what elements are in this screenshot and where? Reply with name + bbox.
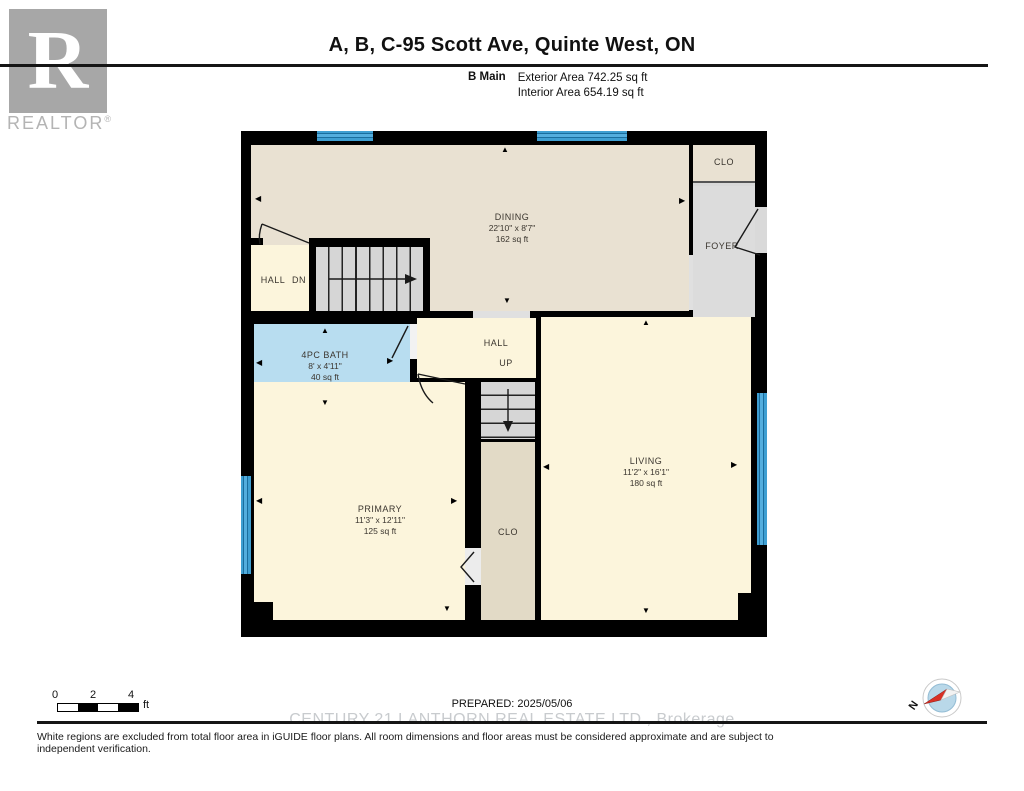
realtor-logo: R xyxy=(9,9,107,113)
header-divider xyxy=(0,64,988,67)
floor-plan-page: R REALTOR® A, B, C-95 Scott Ave, Quinte … xyxy=(0,0,1024,791)
prepared-date: PREPARED: 2025/05/06 xyxy=(0,698,1024,710)
footer-divider xyxy=(37,721,987,724)
realtor-logo-r-icon: R xyxy=(28,19,89,103)
closet-bifold-door xyxy=(461,552,474,582)
disclaimer-text: White regions are excluded from total fl… xyxy=(37,731,827,755)
bath-door-leaf xyxy=(392,326,408,358)
hall-door-arc xyxy=(259,224,262,244)
hall-lower-door-leaf xyxy=(418,374,465,384)
exterior-area: Exterior Area 742.25 sq ft xyxy=(518,71,648,86)
stairs-down-arrowhead xyxy=(405,274,417,284)
hall-door-leaf xyxy=(262,224,309,243)
stairs-up-arrowhead xyxy=(503,421,513,432)
floor-plan-canvas: DINING 22'10" x 8'7" 162 sq ft 4PC BATH … xyxy=(241,131,767,637)
plan-annotations xyxy=(241,131,767,637)
page-title: A, B, C-95 Scott Ave, Quinte West, ON xyxy=(0,34,1024,57)
compass-north-label: N xyxy=(907,699,921,712)
floor-label: B Main xyxy=(468,71,506,101)
foyer-entry-door xyxy=(735,209,760,255)
realtor-logo-wordmark: REALTOR® xyxy=(7,113,113,134)
hall-lower-door-arc xyxy=(418,374,433,403)
registered-mark: ® xyxy=(104,114,113,124)
compass-icon: N xyxy=(903,676,967,722)
interior-area: Interior Area 654.19 sq ft xyxy=(518,86,648,101)
floor-info: B Main Exterior Area 742.25 sq ft Interi… xyxy=(468,71,647,101)
realtor-logo-text: REALTOR xyxy=(7,113,104,133)
brokerage-watermark: CENTURY 21 LANTHORN REAL ESTATE LTD., Br… xyxy=(0,711,1024,729)
